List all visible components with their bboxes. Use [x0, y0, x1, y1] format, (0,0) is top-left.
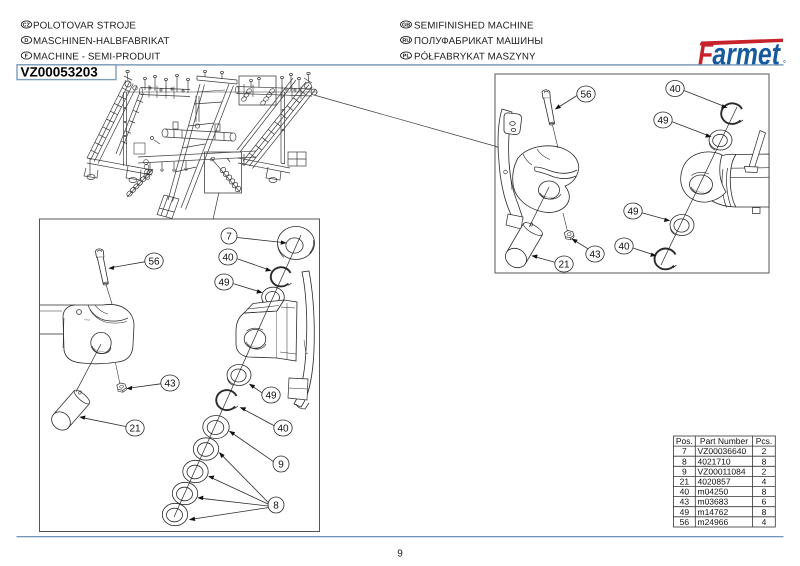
- svg-text:21: 21: [680, 477, 690, 487]
- svg-text:2: 2: [762, 446, 767, 456]
- svg-text:40: 40: [222, 253, 234, 264]
- svg-text:m04250: m04250: [698, 487, 729, 497]
- svg-text:VZ00036640: VZ00036640: [698, 446, 747, 456]
- svg-text:GB: GB: [402, 23, 410, 29]
- svg-text:8: 8: [682, 456, 687, 466]
- svg-text:43: 43: [164, 379, 176, 390]
- svg-text:49: 49: [218, 278, 230, 289]
- svg-text:40: 40: [680, 487, 690, 497]
- svg-text:49: 49: [657, 116, 669, 127]
- svg-text:8: 8: [273, 501, 279, 512]
- svg-text:56: 56: [680, 517, 690, 527]
- svg-text:40: 40: [618, 242, 630, 253]
- svg-text:56: 56: [148, 257, 160, 268]
- svg-text:49: 49: [265, 391, 277, 402]
- svg-text:Part Number: Part Number: [700, 436, 748, 446]
- svg-text:49: 49: [680, 507, 690, 517]
- svg-text:6: 6: [762, 497, 767, 507]
- svg-text:43: 43: [589, 250, 601, 261]
- svg-text:armet: armet: [712, 36, 781, 71]
- svg-text:VZ00053203: VZ00053203: [21, 65, 99, 80]
- svg-text:7: 7: [682, 446, 687, 456]
- svg-text:40: 40: [277, 424, 289, 435]
- svg-text:21: 21: [558, 260, 570, 271]
- svg-text:4020857: 4020857: [698, 477, 731, 487]
- svg-text:9: 9: [278, 460, 284, 471]
- svg-text:9: 9: [682, 466, 687, 476]
- svg-text:Pcs.: Pcs.: [756, 436, 773, 446]
- svg-text:ПОЛУФАБРИКАТ МАШИНЫ: ПОЛУФАБРИКАТ МАШИНЫ: [414, 36, 543, 47]
- svg-text:8: 8: [762, 507, 767, 517]
- svg-text:MACHINE - SEMI-PRODUIT: MACHINE - SEMI-PRODUIT: [33, 52, 160, 63]
- svg-text:2: 2: [762, 466, 767, 476]
- svg-text:m03683: m03683: [698, 497, 729, 507]
- svg-text:9: 9: [397, 549, 403, 560]
- svg-text:21: 21: [129, 424, 141, 435]
- svg-text:Pos.: Pos.: [676, 436, 693, 446]
- svg-text:m24966: m24966: [698, 517, 729, 527]
- svg-text:43: 43: [680, 497, 690, 507]
- svg-text:PL: PL: [403, 54, 411, 60]
- svg-text:F: F: [698, 36, 714, 71]
- svg-text:4: 4: [762, 477, 767, 487]
- svg-text:7: 7: [226, 232, 232, 243]
- svg-text:4: 4: [762, 517, 767, 527]
- svg-text:8: 8: [762, 456, 767, 466]
- svg-text:PÓŁFABRYKAT MASZYNY: PÓŁFABRYKAT MASZYNY: [414, 51, 536, 63]
- svg-text:56: 56: [580, 90, 592, 101]
- svg-text:CZ: CZ: [23, 23, 31, 29]
- svg-text:POLOTOVAR STROJE: POLOTOVAR STROJE: [33, 21, 136, 32]
- svg-text:40: 40: [669, 84, 681, 95]
- svg-text:MASCHINEN-HALBFABRIKAT: MASCHINEN-HALBFABRIKAT: [33, 36, 169, 47]
- svg-text:D: D: [24, 38, 28, 44]
- svg-text:SEMIFINISHED MACHINE: SEMIFINISHED MACHINE: [414, 21, 534, 32]
- svg-text:RU: RU: [402, 38, 410, 44]
- svg-text:8: 8: [762, 487, 767, 497]
- svg-text:VZ00011084: VZ00011084: [698, 466, 746, 476]
- svg-text:49: 49: [627, 207, 639, 218]
- svg-text:m14762: m14762: [698, 507, 729, 517]
- svg-text:4021710: 4021710: [698, 456, 731, 466]
